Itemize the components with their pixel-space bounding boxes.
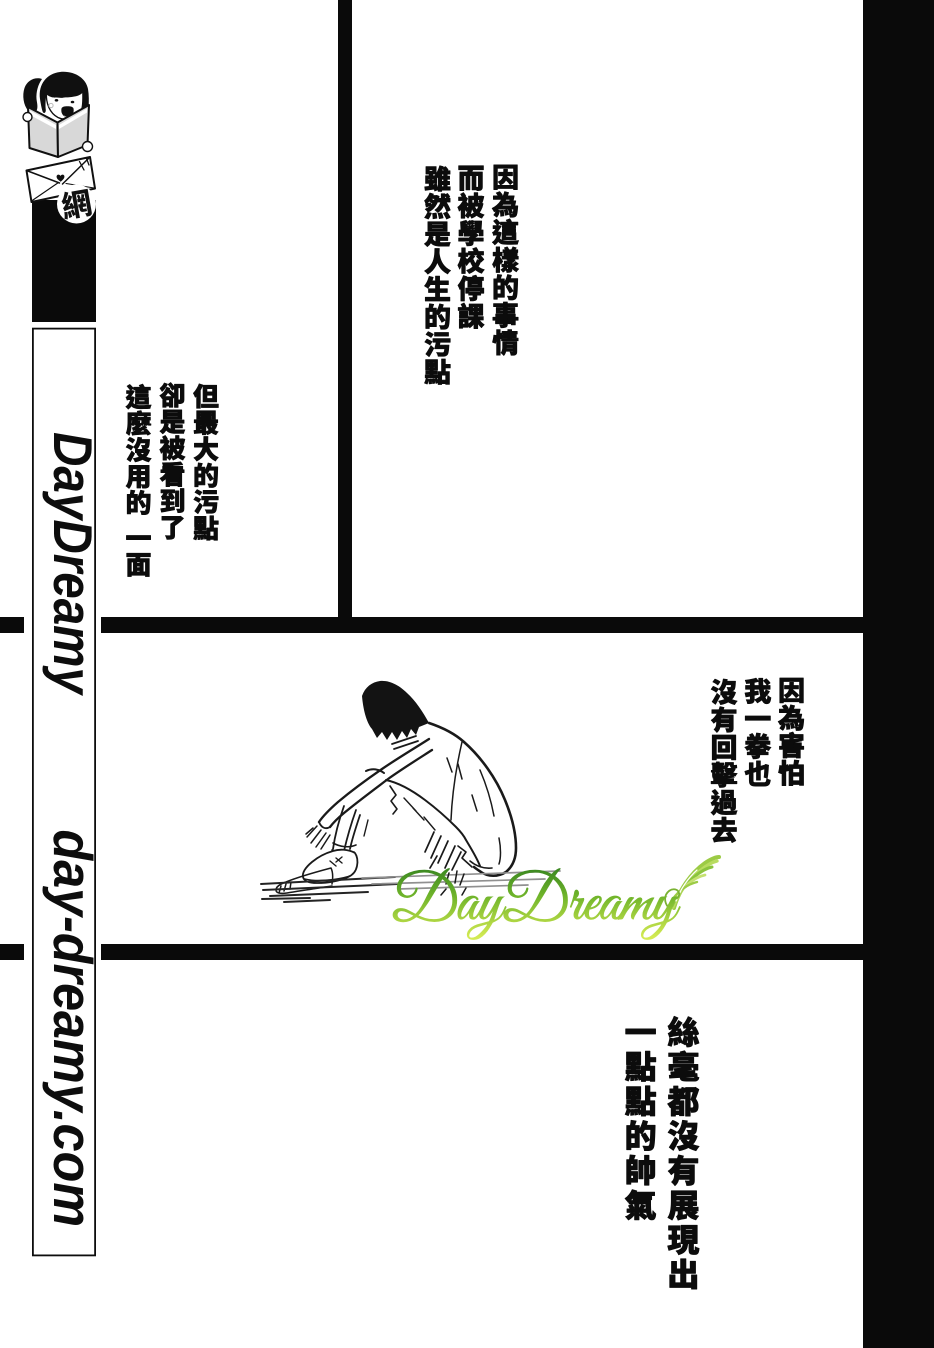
- svg-text:day-dreamy.com: day-dreamy.com: [42, 830, 104, 1228]
- svg-text:DayDreamy: DayDreamy: [42, 432, 104, 696]
